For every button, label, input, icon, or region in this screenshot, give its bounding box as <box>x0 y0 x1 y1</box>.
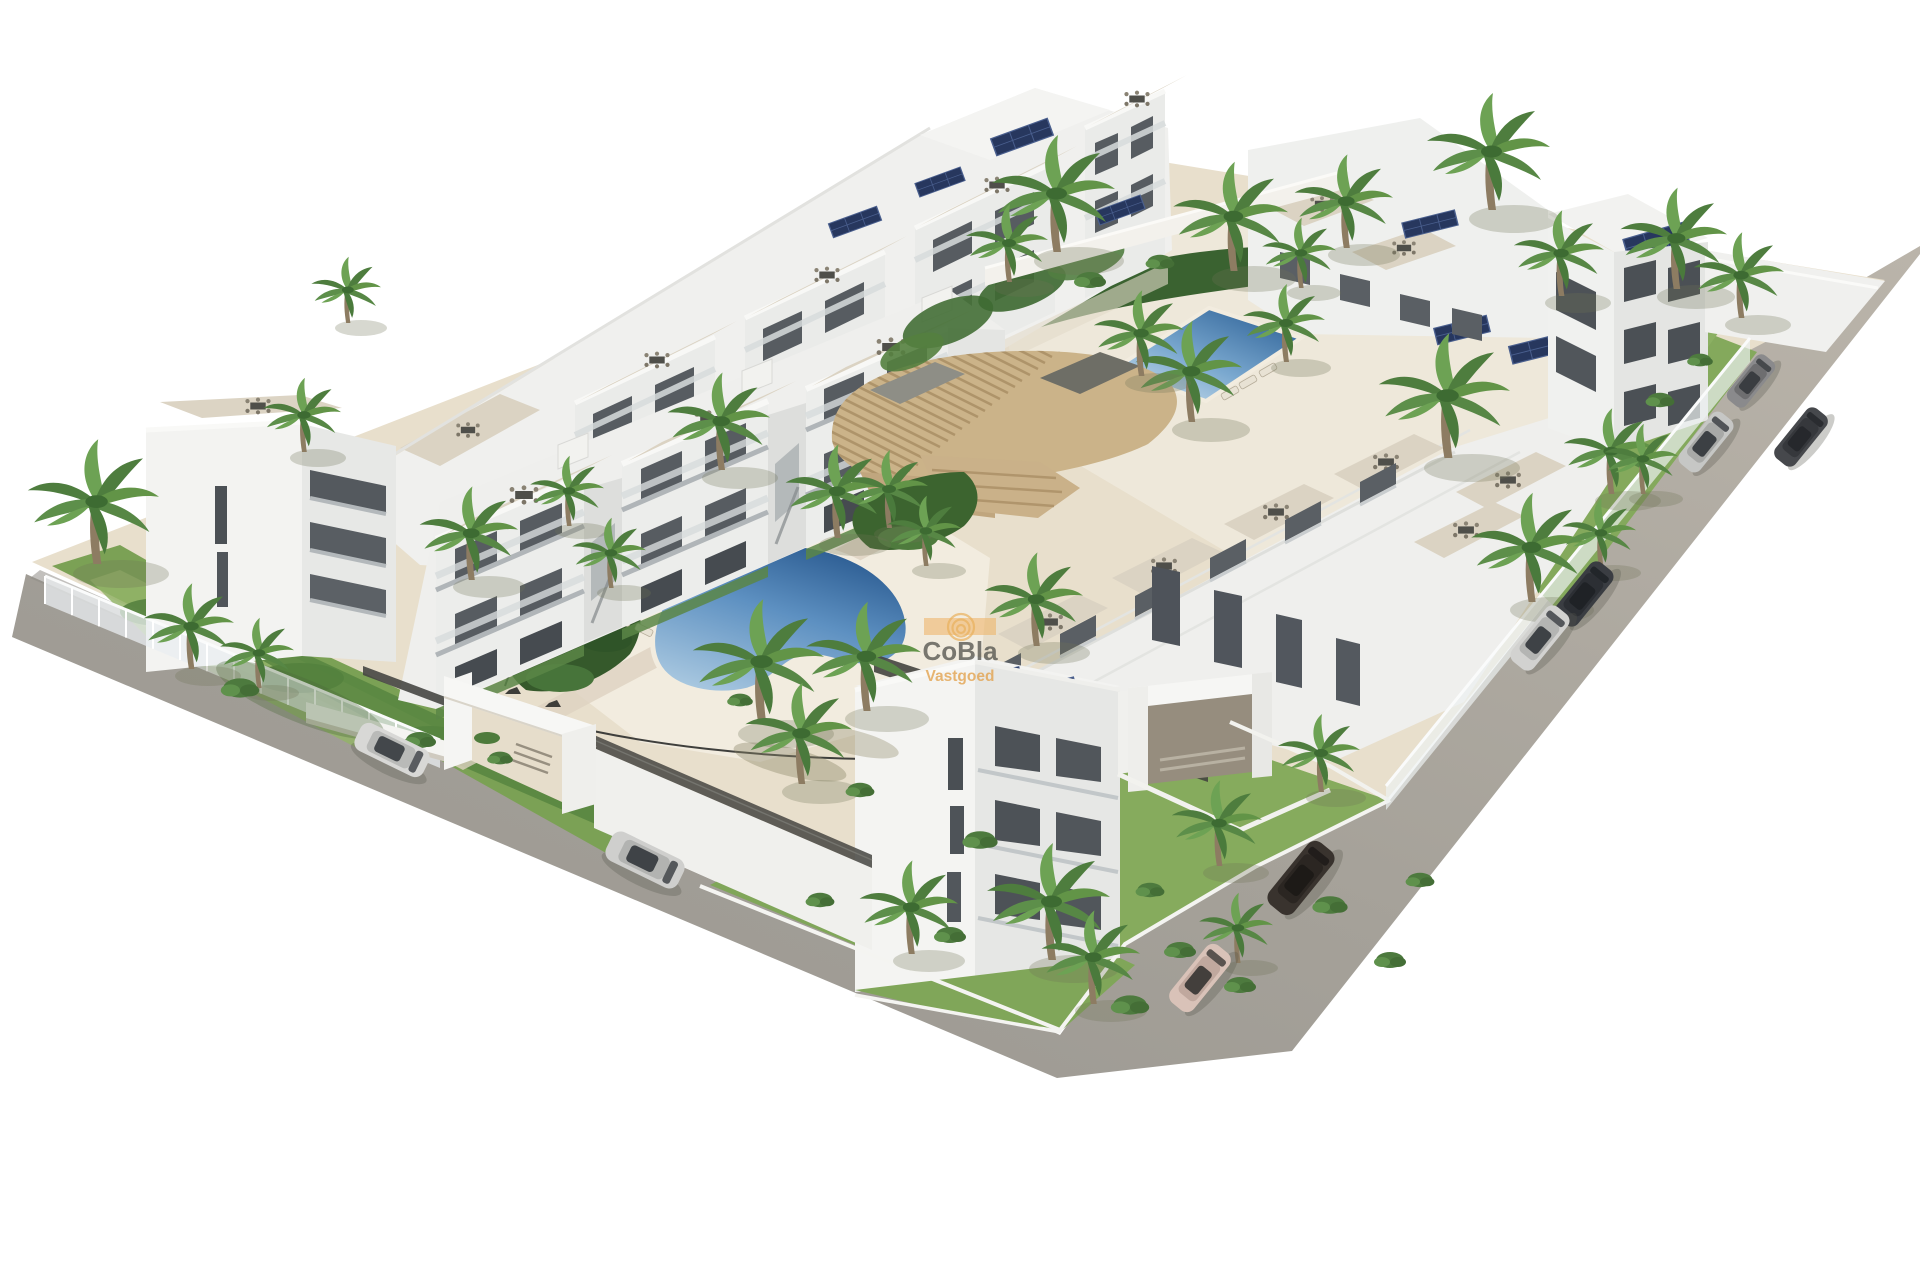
svg-text:CoBla: CoBla <box>922 636 998 666</box>
svg-text:Vastgoed: Vastgoed <box>926 668 995 685</box>
